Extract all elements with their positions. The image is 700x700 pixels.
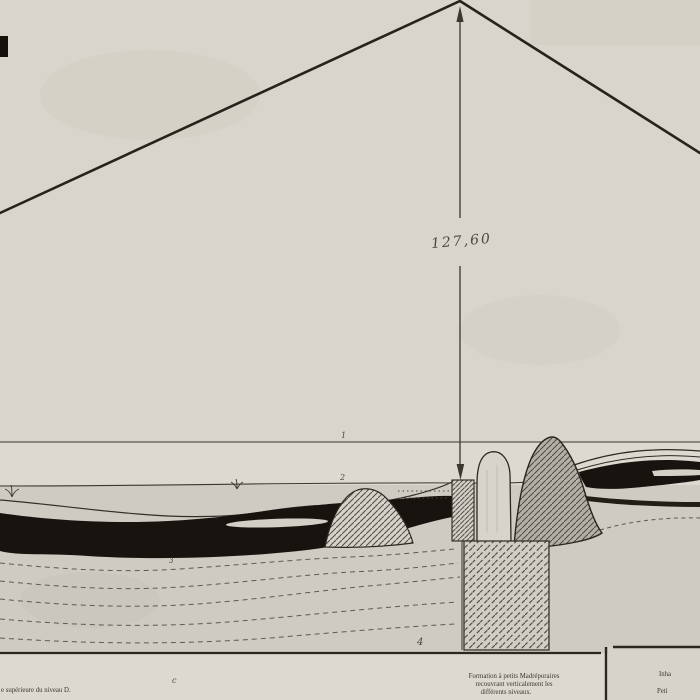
paper-stain [530, 0, 700, 45]
paper-background [0, 0, 700, 700]
white-dome-shape [477, 452, 511, 542]
caption-left: e supérieure du niveau D. [1, 687, 71, 694]
level-mark-2: 2 [339, 473, 345, 482]
reef-column [452, 480, 474, 541]
plate-edge-mark [0, 36, 8, 57]
caption-strip [0, 654, 700, 700]
level-mark-3: 3 [169, 557, 174, 565]
reef-column-outline [452, 480, 474, 541]
caption-center-line-3: différents niveaux. [481, 689, 532, 696]
stratum-line-1 [0, 442, 700, 443]
reef-block [462, 541, 549, 650]
paper-stain [20, 572, 160, 628]
white-dome [477, 452, 511, 542]
legend-box-area [608, 647, 700, 700]
paper-stain [460, 295, 620, 365]
layered-band-white-streak [652, 469, 700, 476]
caption-center-line-1: Formation à petits Madréporaires [469, 673, 560, 680]
letter-mark-c: c [172, 676, 177, 685]
reef-block-outline [464, 541, 549, 650]
level-mark-4: 4 [416, 637, 423, 648]
caption-center-line-2: recouvrant verticalement les [476, 681, 553, 688]
level-mark-1: 1 [341, 431, 346, 440]
paper-stain [40, 50, 260, 140]
geological-section-plate: 127,60 1 2 3 [0, 0, 700, 700]
caption-right-line-2: Peti [657, 688, 668, 695]
caption-right-line-1: Inha [659, 671, 671, 678]
